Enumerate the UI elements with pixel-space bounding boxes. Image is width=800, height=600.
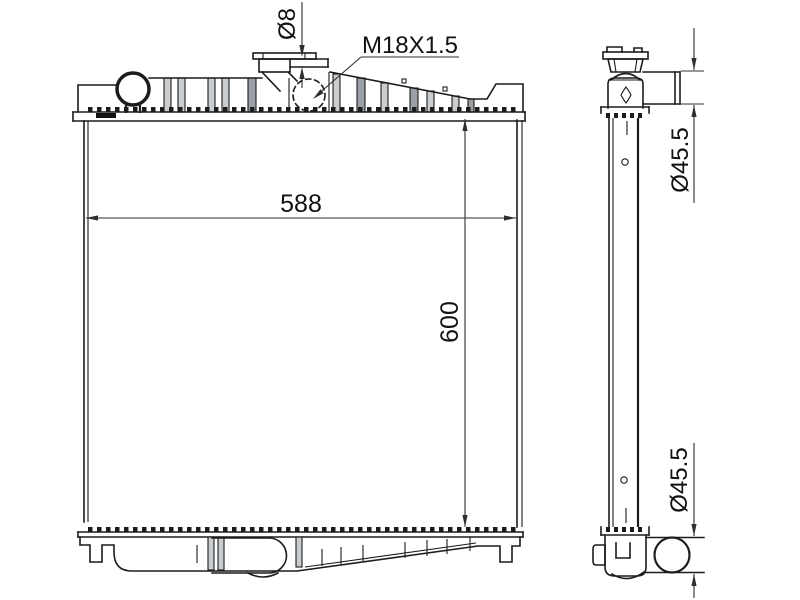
core-top-serration <box>73 110 525 122</box>
side-core-strip <box>609 118 638 527</box>
dimension-core-width: 588 <box>86 190 516 221</box>
dimension-core-height: 600 <box>436 119 468 527</box>
dimension-top-pipe-diameter: Ø45.5 <box>667 28 704 203</box>
thread-label: M18X1.5 <box>362 32 458 59</box>
core-bottom-serration <box>78 530 523 538</box>
overflow-diameter-label: Ø8 <box>274 8 301 40</box>
side-bracket-mark <box>96 113 116 118</box>
mounting-hole <box>621 87 631 103</box>
radiator-drawing-canvas: Ø8 M18X1.5 588 600 Ø45.5 Ø45.5 <box>0 0 800 600</box>
core-height-label: 600 <box>436 301 464 343</box>
top-inlet-pipe <box>643 72 680 104</box>
radiator-cap-circle <box>117 73 149 105</box>
technical-drawing: Ø8 M18X1.5 588 600 Ø45.5 Ø45.5 <box>0 0 800 600</box>
bottom-outlet-pipe-circle <box>655 538 690 573</box>
overflow-pipe <box>290 59 328 67</box>
dimension-bottom-pipe-diameter: Ø45.5 <box>666 443 697 598</box>
filler-neck <box>253 53 329 112</box>
bottom-pipe-diameter-label: Ø45.5 <box>666 447 693 512</box>
top-pipe-diameter-label: Ø45.5 <box>667 127 694 192</box>
bottom-tank <box>80 537 520 577</box>
side-bottom-tank <box>593 527 704 579</box>
side-top-tank <box>601 72 680 116</box>
side-cap <box>603 47 648 72</box>
dimension-overflow-diameter: Ø8 <box>274 2 305 88</box>
core-width-label: 588 <box>280 190 322 218</box>
